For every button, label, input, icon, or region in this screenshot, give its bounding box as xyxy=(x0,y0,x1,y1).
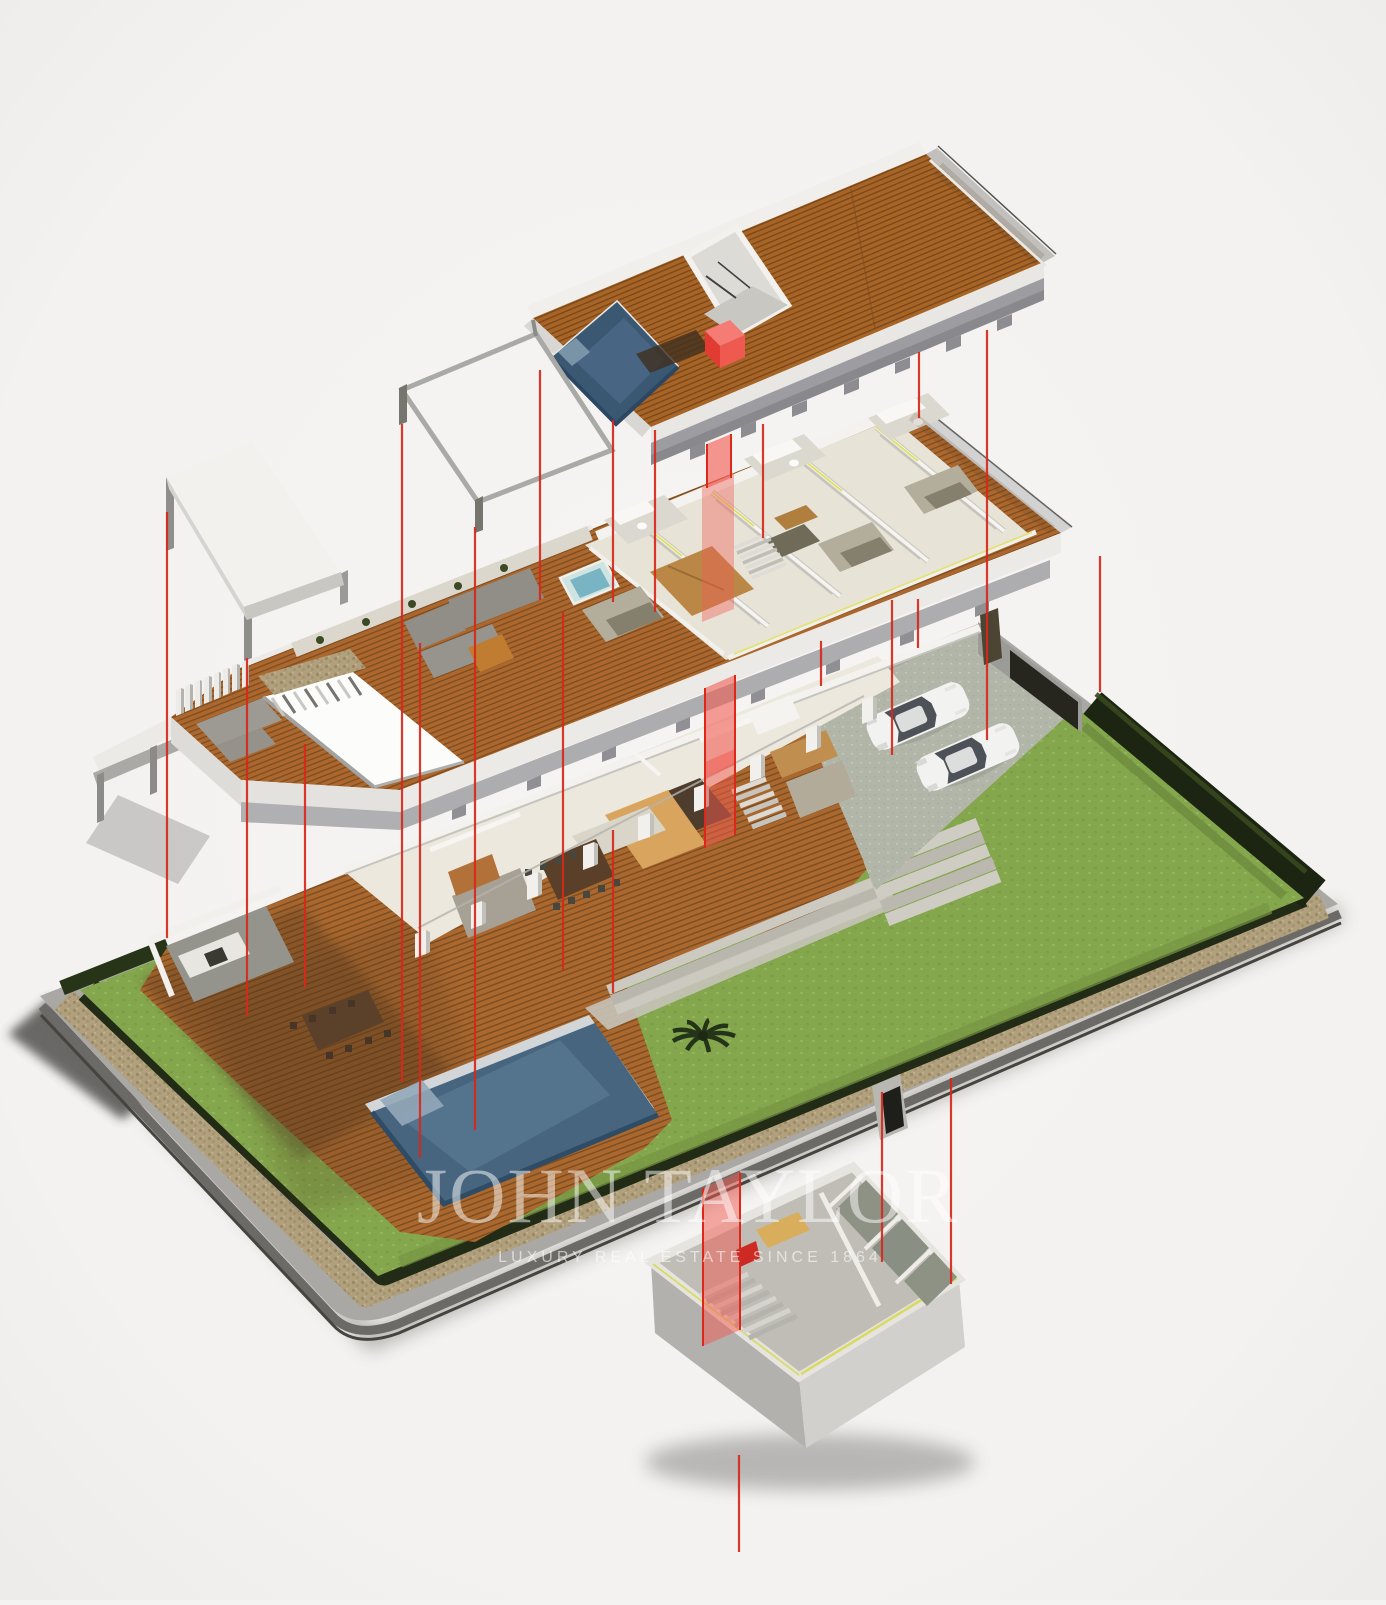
svg-text:LUXURY REAL ESTATE SINCE 1864: LUXURY REAL ESTATE SINCE 1864 xyxy=(498,1249,882,1266)
svg-text:JOHN TAYLOR: JOHN TAYLOR xyxy=(417,1152,959,1239)
